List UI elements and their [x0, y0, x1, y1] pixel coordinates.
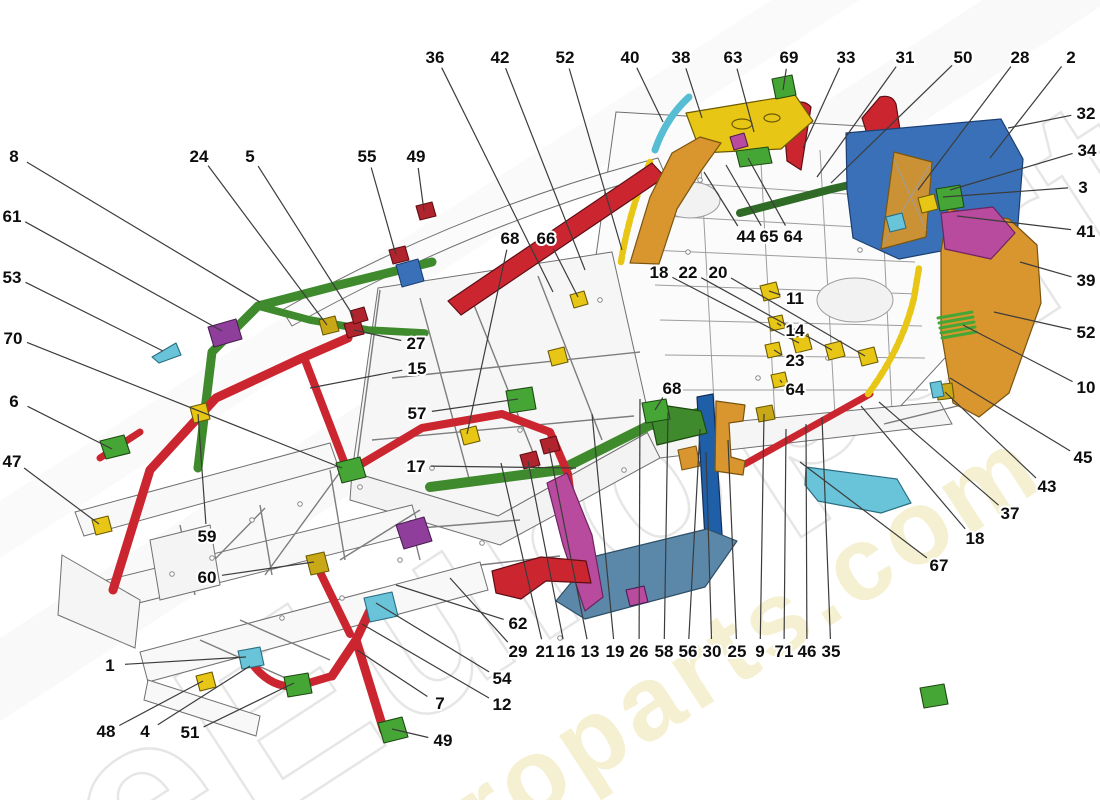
callout-36[interactable]: 36	[426, 48, 445, 67]
part-red-clip	[416, 202, 436, 220]
callout-15[interactable]: 15	[408, 359, 427, 378]
part-cyan-bracket	[364, 592, 398, 622]
part-green-bracket	[736, 147, 772, 167]
part-yellow-clip	[756, 405, 775, 422]
callout-46[interactable]: 46	[798, 642, 817, 661]
callout-39[interactable]: 39	[1077, 271, 1096, 290]
callout-38[interactable]: 38	[672, 48, 691, 67]
part-orange-clip	[678, 446, 700, 470]
callout-64[interactable]: 64	[784, 227, 803, 246]
callout-16[interactable]: 16	[557, 642, 576, 661]
callout-63[interactable]: 63	[724, 48, 743, 67]
callout-41[interactable]: 41	[1077, 222, 1096, 241]
callout-6[interactable]: 6	[9, 392, 18, 411]
callout-19[interactable]: 19	[606, 642, 625, 661]
callout-9[interactable]: 9	[755, 642, 764, 661]
callout-31[interactable]: 31	[896, 48, 915, 67]
callout-27[interactable]: 27	[407, 334, 426, 353]
callout-30[interactable]: 30	[703, 642, 722, 661]
callout-69[interactable]: 69	[780, 48, 799, 67]
part-green-bracket	[642, 399, 670, 423]
callout-33[interactable]: 33	[837, 48, 856, 67]
callout-43[interactable]: 43	[1038, 477, 1057, 496]
part-yellow-clip	[190, 403, 210, 423]
part-cyan-bracket	[886, 213, 906, 232]
callout-67[interactable]: 67	[930, 556, 949, 575]
leader-line-61	[25, 222, 222, 331]
callout-68[interactable]: 68	[501, 229, 520, 248]
callout-34[interactable]: 34	[1078, 141, 1097, 160]
callout-29[interactable]: 29	[509, 642, 528, 661]
callout-54[interactable]: 54	[493, 669, 512, 688]
part-yellow-clip	[92, 516, 112, 535]
callout-12[interactable]: 12	[493, 695, 512, 714]
callout-61[interactable]: 61	[3, 207, 22, 226]
part-purple-bracket	[208, 319, 242, 347]
part-yellow-clip	[765, 342, 782, 358]
callout-56[interactable]: 56	[679, 642, 698, 661]
callout-14[interactable]: 14	[786, 321, 805, 340]
callout-17[interactable]: 17	[407, 457, 426, 476]
callout-49[interactable]: 49	[434, 731, 453, 750]
part-cyan-bracket	[930, 381, 944, 398]
callout-59[interactable]: 59	[198, 527, 217, 546]
callout-18[interactable]: 18	[966, 529, 985, 548]
callout-58[interactable]: 58	[655, 642, 674, 661]
callout-24[interactable]: 24	[190, 147, 209, 166]
callout-4[interactable]: 4	[140, 722, 150, 741]
callout-7[interactable]: 7	[435, 694, 444, 713]
callout-57[interactable]: 57	[408, 404, 427, 423]
callout-5[interactable]: 5	[245, 147, 254, 166]
callout-52[interactable]: 52	[1077, 323, 1096, 342]
callout-23[interactable]: 23	[786, 351, 805, 370]
callout-37[interactable]: 37	[1001, 504, 1020, 523]
callout-26[interactable]: 26	[630, 642, 649, 661]
callout-62[interactable]: 62	[509, 614, 528, 633]
callout-40[interactable]: 40	[621, 48, 640, 67]
part-yellow-clip	[918, 194, 938, 213]
callout-1[interactable]: 1	[105, 656, 114, 675]
leader-line-53	[26, 282, 164, 351]
callout-22[interactable]: 22	[679, 263, 698, 282]
callout-8[interactable]: 8	[9, 147, 18, 166]
callout-10[interactable]: 10	[1077, 378, 1096, 397]
leader-line-8	[27, 162, 260, 302]
callout-66[interactable]: 66	[537, 229, 556, 248]
callout-2[interactable]: 2	[1066, 48, 1075, 67]
callout-21[interactable]: 21	[536, 642, 555, 661]
part-red-clip	[520, 451, 540, 469]
callout-42[interactable]: 42	[491, 48, 510, 67]
callout-55[interactable]: 55	[358, 147, 377, 166]
part-yellow-clip	[825, 341, 845, 360]
callout-44[interactable]: 44	[737, 227, 756, 246]
callout-3[interactable]: 3	[1078, 178, 1087, 197]
part-green-bracket	[936, 185, 964, 211]
callout-60[interactable]: 60	[198, 568, 217, 587]
callout-65[interactable]: 65	[760, 227, 779, 246]
callout-28[interactable]: 28	[1011, 48, 1030, 67]
leader-line-55	[371, 168, 396, 256]
wheel-arch-hump	[817, 278, 893, 322]
part-red-clip	[389, 246, 409, 264]
callout-32[interactable]: 32	[1077, 104, 1096, 123]
callout-47[interactable]: 47	[3, 452, 22, 471]
callout-11[interactable]: 11	[786, 289, 804, 308]
part-yellow-clip	[196, 672, 216, 691]
callout-71[interactable]: 71	[775, 642, 794, 661]
callout-53[interactable]: 53	[3, 268, 22, 287]
callout-13[interactable]: 13	[581, 642, 600, 661]
callout-70[interactable]: 70	[4, 329, 23, 348]
part-yellow-clip	[858, 347, 878, 366]
part-magenta-clip	[626, 586, 648, 606]
callout-50[interactable]: 50	[954, 48, 973, 67]
callout-51[interactable]: 51	[181, 723, 200, 742]
callout-45[interactable]: 45	[1074, 448, 1093, 467]
callout-48[interactable]: 48	[97, 722, 116, 741]
part-cyan-bracket	[152, 343, 181, 363]
callout-35[interactable]: 35	[822, 642, 841, 661]
callout-49[interactable]: 49	[407, 147, 426, 166]
part-green-end-bracket	[920, 684, 948, 708]
parts-diagram-page: eEuroparts eEuroparts.com	[0, 0, 1100, 800]
callout-68[interactable]: 68	[663, 379, 682, 398]
callout-64[interactable]: 64	[786, 380, 805, 399]
part-green-clamp	[284, 673, 312, 697]
part-yellow-clip	[548, 347, 568, 366]
callout-25[interactable]: 25	[728, 642, 747, 661]
leader-line-6	[28, 406, 113, 449]
callout-20[interactable]: 20	[709, 263, 728, 282]
callout-18[interactable]: 18	[650, 263, 669, 282]
parts-diagram-canvas: eEuroparts eEuroparts.com	[0, 0, 1100, 800]
part-yellow-clip	[460, 426, 480, 445]
callout-52[interactable]: 52	[556, 48, 575, 67]
part-cyan-bracket	[238, 647, 264, 669]
